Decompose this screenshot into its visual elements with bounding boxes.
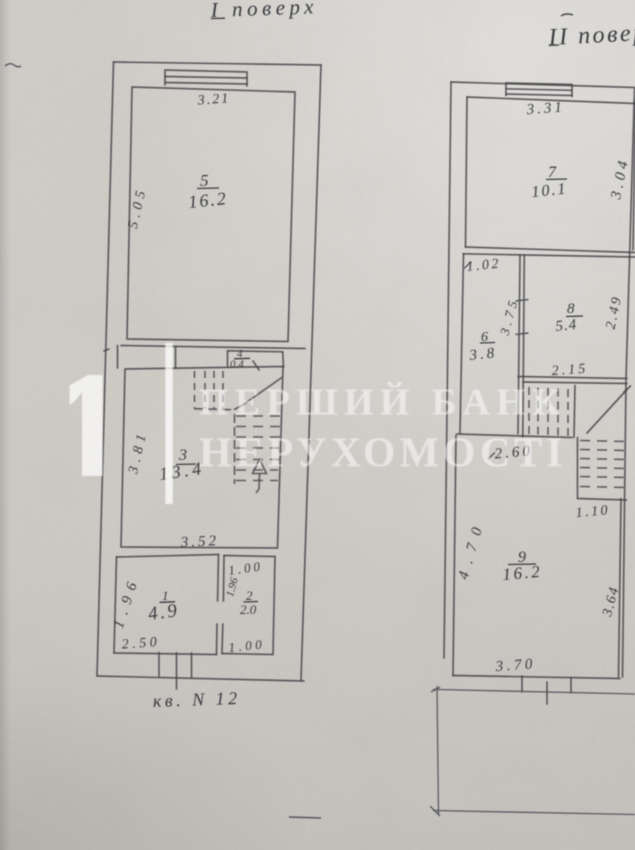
svg-text:3.70: 3.70 [494, 656, 536, 675]
svg-text:5: 5 [200, 171, 209, 190]
svg-text:ІІ повер: ІІ повер [547, 20, 635, 51]
svg-text:2.50: 2.50 [121, 635, 160, 653]
svg-text:8: 8 [567, 301, 575, 317]
svg-text:І поверх: І поверх [209, 0, 318, 22]
svg-text:4.9: 4.9 [147, 600, 181, 625]
svg-text:3.21: 3.21 [196, 91, 230, 108]
svg-text:ПЕРШИЙ БАНК: ПЕРШИЙ БАНК [199, 382, 566, 424]
svg-text:кв. N 12: кв. N 12 [153, 688, 241, 711]
svg-text:2.15: 2.15 [551, 362, 588, 380]
svg-text:7: 7 [548, 164, 557, 181]
svg-text:2: 2 [246, 588, 253, 603]
svg-text:2.0: 2.0 [240, 602, 257, 617]
svg-text:3.52: 3.52 [179, 533, 219, 551]
svg-text:3.31: 3.31 [525, 99, 565, 118]
svg-text:1.10: 1.10 [575, 503, 611, 521]
svg-text:3.8: 3.8 [468, 345, 498, 364]
svg-text:0.4: 0.4 [230, 359, 244, 371]
svg-text:5.4: 5.4 [555, 317, 578, 335]
svg-text:16.2: 16.2 [502, 562, 543, 584]
svg-text:НЕРУХОМОСТІ: НЕРУХОМОСТІ [199, 431, 566, 477]
svg-text:16.2: 16.2 [187, 188, 228, 212]
